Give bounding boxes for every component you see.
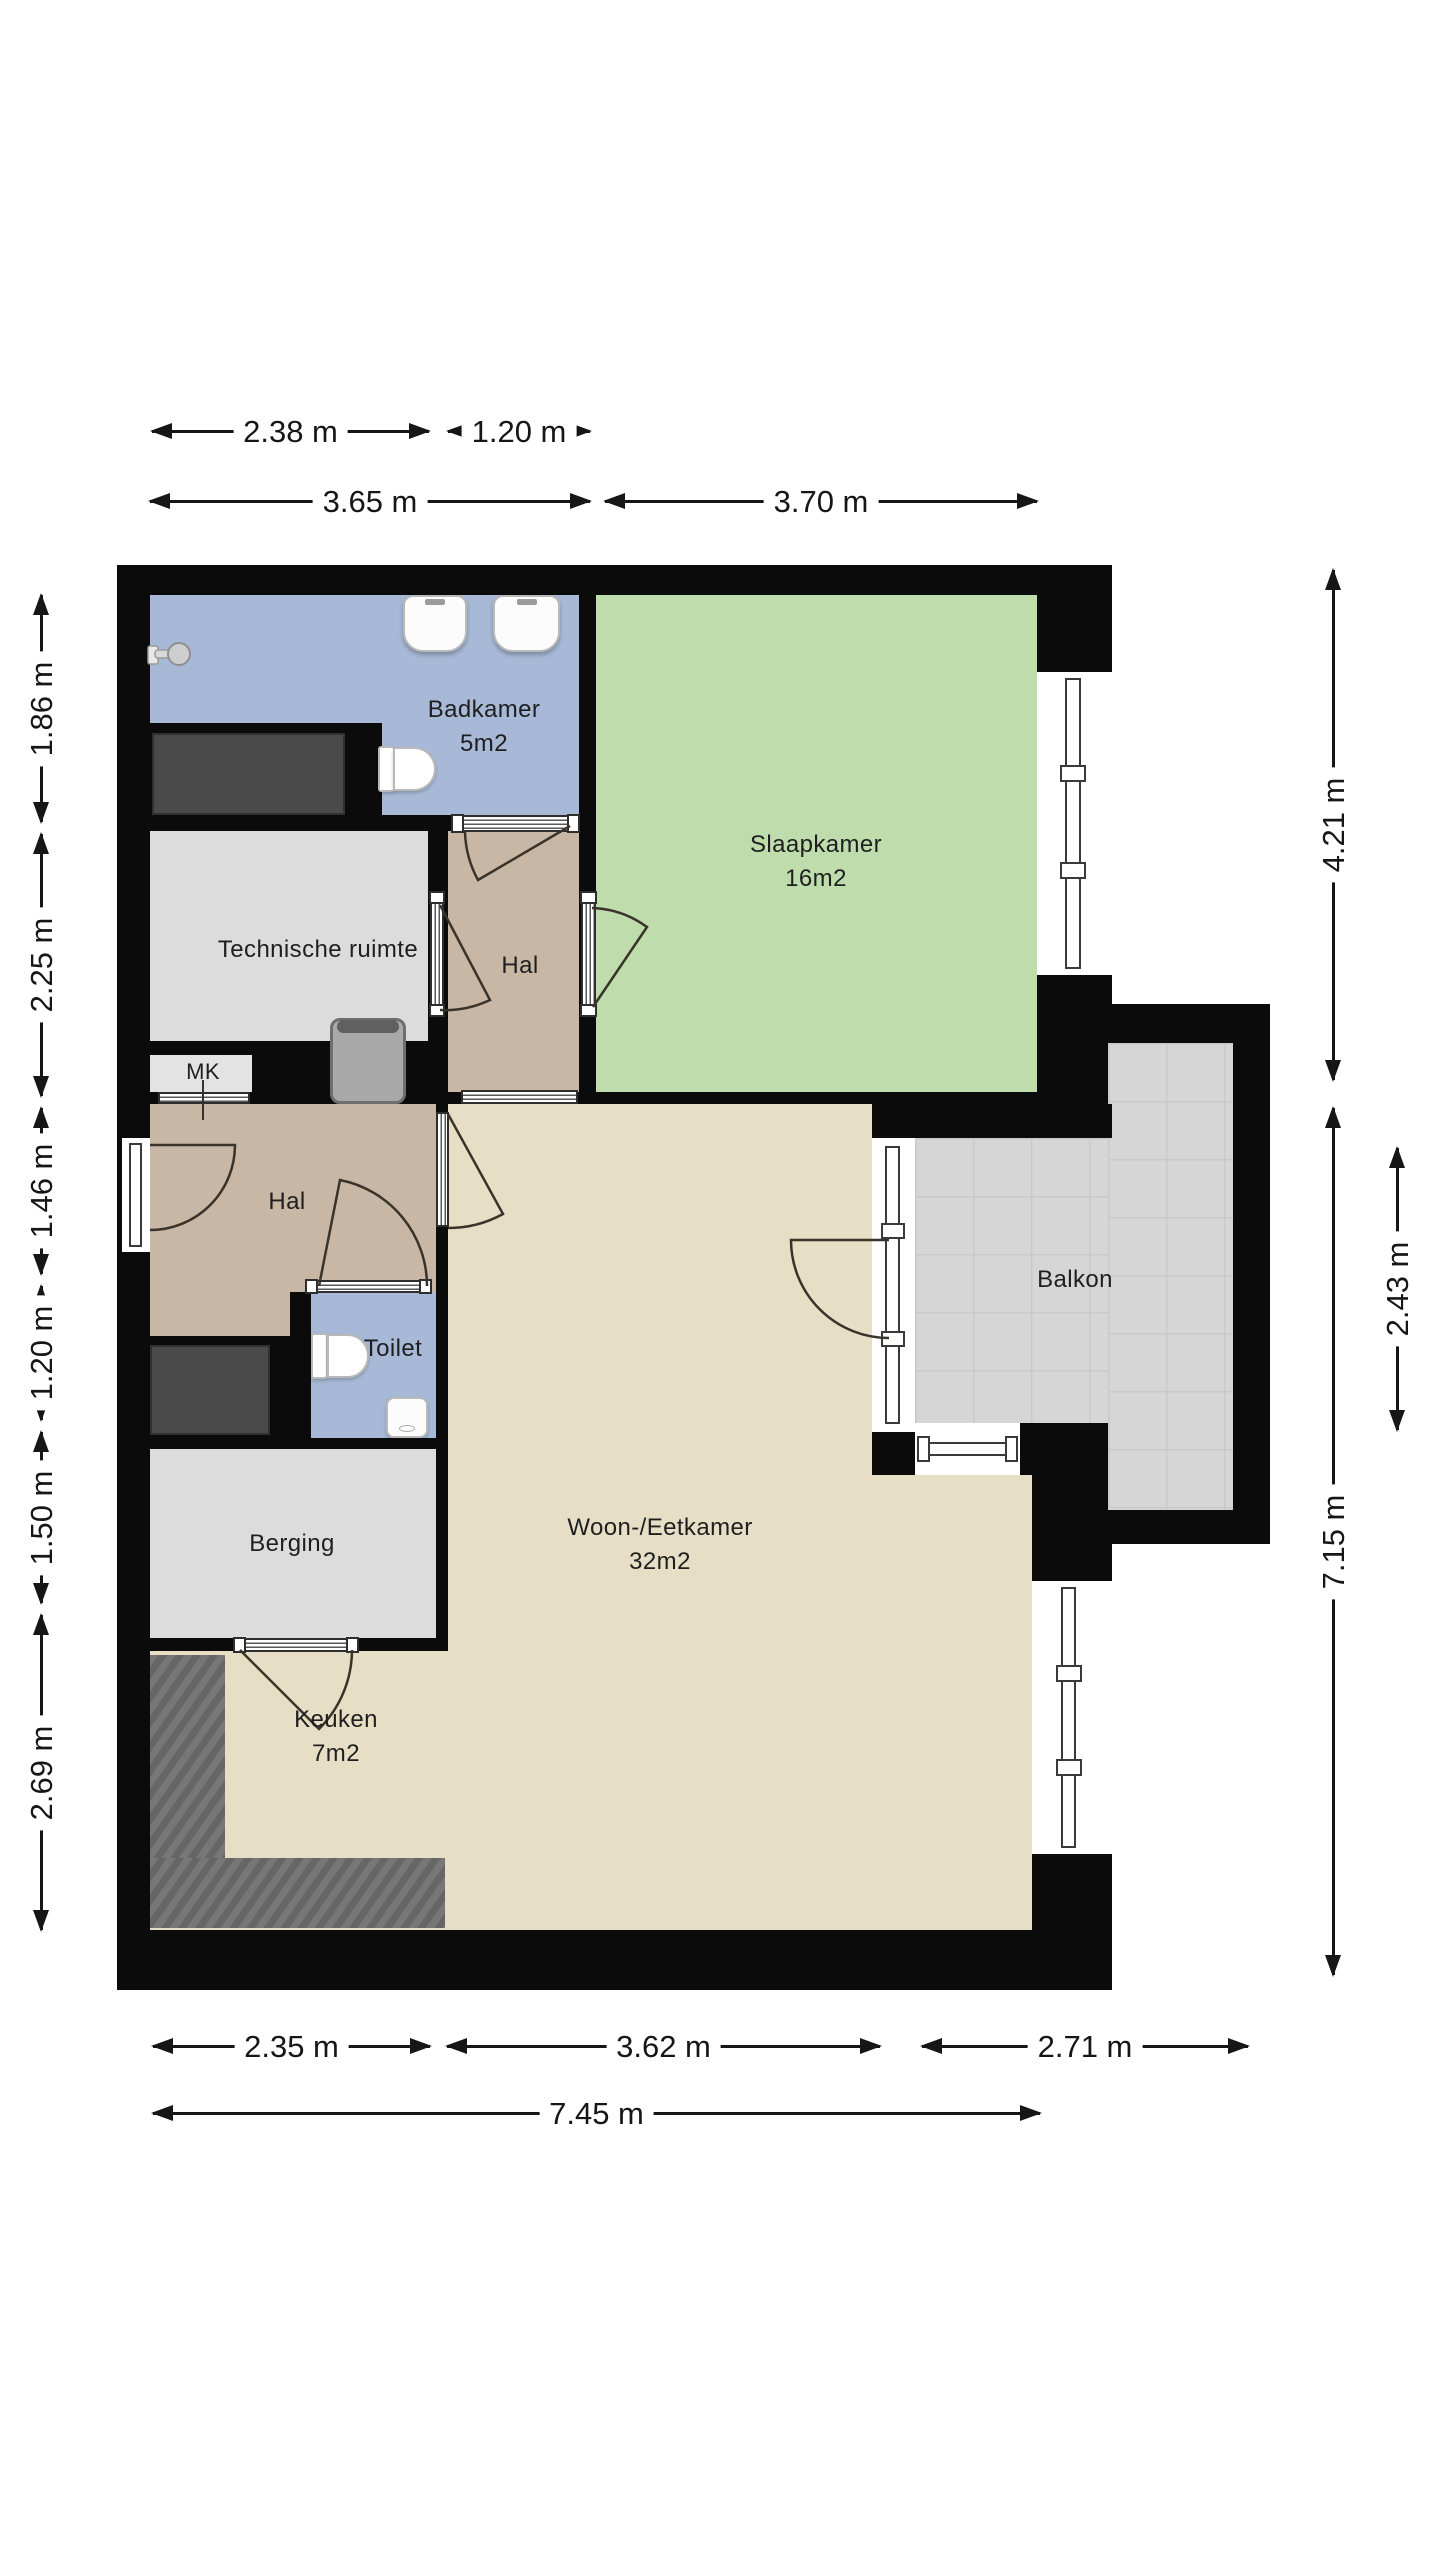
dimension-bottom-235: 2.35 m	[153, 2045, 430, 2048]
dimension-top-370: 3.70 m	[605, 500, 1037, 503]
entrance-door-icon	[122, 1138, 150, 1252]
dimension-left-150: 1.50 m	[40, 1432, 43, 1603]
label-balkon: Balkon	[1037, 1266, 1113, 1294]
label-slaapkamer-area: 16m2	[785, 865, 847, 893]
dimension-right-243: 2.43 m	[1396, 1148, 1399, 1430]
door-sill-hal-icon	[461, 1090, 578, 1104]
door-sill-toilet-icon	[312, 1280, 425, 1293]
wall-patch-above-sliding-door	[872, 1104, 1112, 1138]
window-balkon-icon	[915, 1423, 1020, 1475]
door-sill-technische-icon	[430, 898, 444, 1010]
label-slaapkamer: Slaapkamer	[750, 831, 882, 859]
dimension-top-238: 2.38 m	[152, 430, 429, 433]
door-sill-slaapkamer-icon	[581, 898, 596, 1010]
bathroom-closet-icon	[152, 733, 345, 815]
label-toilet: Toilet	[364, 1335, 422, 1363]
label-badkamer: Badkamer	[428, 696, 541, 724]
door-sill-berging-icon	[240, 1638, 352, 1652]
dimension-left-225: 2.25 m	[40, 834, 43, 1096]
wc-sink-icon	[386, 1397, 428, 1438]
kitchen-counter-icon	[150, 1655, 225, 1858]
label-keuken-area: 7m2	[312, 1740, 360, 1768]
dimension-left-146: 1.46 m	[40, 1108, 43, 1274]
dimension-left-269: 2.69 m	[40, 1615, 43, 1930]
label-badkamer-area: 5m2	[460, 730, 508, 758]
window-woonkamer-icon	[1032, 1581, 1112, 1854]
sink-icon-2	[493, 595, 560, 652]
dimension-bottom-271: 2.71 m	[922, 2045, 1248, 2048]
label-keuken: Keuken	[294, 1706, 378, 1734]
label-hal: Hal	[268, 1188, 305, 1216]
window-slaapkamer-icon	[1037, 672, 1112, 975]
dimension-right-715: 7.15 m	[1332, 1108, 1335, 1975]
dimension-bottom-745: 7.45 m	[153, 2112, 1040, 2115]
label-woon-eetkamer: Woon-/Eetkamer	[567, 1514, 752, 1542]
dimension-top-365: 3.65 m	[150, 500, 590, 503]
label-mk: MK	[186, 1059, 220, 1085]
dimension-bottom-362: 3.62 m	[447, 2045, 880, 2048]
label-technische-ruimte: Technische ruimte	[218, 936, 418, 964]
label-woon-eetkamer-area: 32m2	[629, 1548, 691, 1576]
boiler-icon	[330, 1018, 406, 1104]
sink-icon	[403, 595, 467, 652]
dimension-top-120: 1.20 m	[448, 430, 590, 433]
door-sill-mk-icon	[158, 1092, 250, 1104]
door-sill-badkamer-icon	[458, 815, 573, 832]
shower-head-icon	[146, 632, 194, 678]
room-hal-2	[150, 1292, 290, 1336]
label-berging: Berging	[249, 1530, 335, 1558]
dimension-left-186: 1.86 m	[40, 595, 43, 822]
wardrobe-icon	[150, 1345, 270, 1435]
dimension-left-120: 1.20 m	[40, 1286, 43, 1420]
kitchen-counter-icon-2	[150, 1858, 445, 1928]
room-balkon	[1108, 1043, 1233, 1510]
door-sill-woonkamer-icon	[436, 1112, 449, 1227]
floorplan-canvas: Badkamer 5m2 Slaapkamer 16m2 Technische …	[0, 0, 1440, 2560]
sliding-door-icon	[872, 1138, 915, 1432]
dimension-right-421: 4.21 m	[1332, 570, 1335, 1080]
label-hal-boven: Hal	[501, 952, 538, 980]
